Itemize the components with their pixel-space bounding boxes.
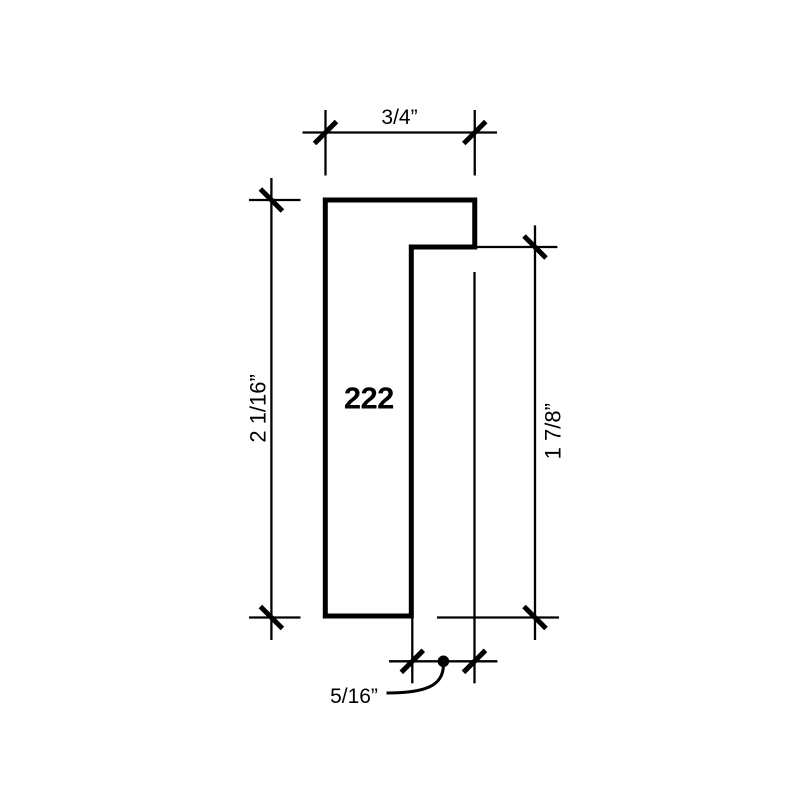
svg-text:5/16”: 5/16” — [330, 685, 378, 708]
svg-text:1 7/8”: 1 7/8” — [541, 403, 566, 459]
svg-text:222: 222 — [344, 380, 394, 415]
svg-text:3/4”: 3/4” — [381, 106, 417, 129]
svg-text:2 1/16”: 2 1/16” — [246, 374, 271, 443]
